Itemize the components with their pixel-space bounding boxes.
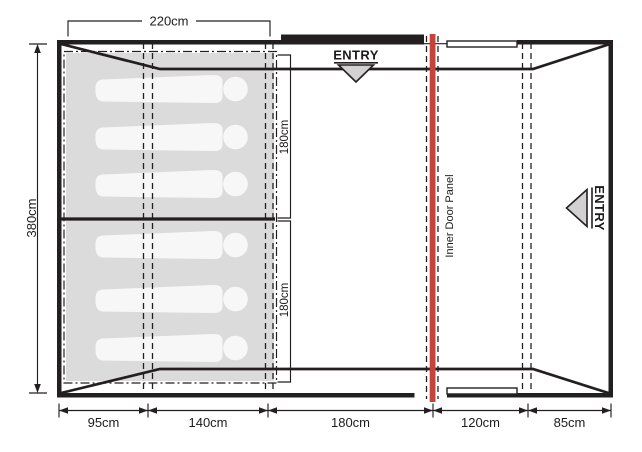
inner-door-panel-label: Inner Door Panel: [444, 174, 456, 257]
entry-top-label: ENTRY: [333, 48, 379, 63]
sleeper-head: [223, 125, 248, 150]
dimension-arrow: [34, 44, 41, 53]
wall-right: [609, 40, 614, 398]
sleeper-head: [223, 77, 248, 102]
dimension-bottom-label-3: 180cm: [331, 415, 370, 430]
wall-left: [57, 40, 62, 398]
sleeper-body: [96, 75, 223, 103]
dimension-bottom-chain: 95cm 140cm 180cm 120cm 85cm: [59, 404, 611, 431]
dimension-left: 380cm: [24, 44, 47, 393]
sleeper-body: [96, 231, 223, 259]
vent-window-bottom: [447, 388, 517, 394]
dimension-top-label: 220cm: [149, 14, 188, 29]
entry-side: ENTRY: [567, 185, 608, 231]
sleeper-body: [96, 123, 223, 151]
dimension-bottom-label-4: 120cm: [461, 415, 500, 430]
dimension-inner-bottom-label: 180cm: [279, 283, 291, 318]
dimension-inner-top-label: 180cm: [279, 120, 291, 155]
wall-top-left-segment: [57, 40, 281, 45]
dimension-inner-bottom: 180cm: [278, 221, 292, 382]
dimension-bottom-label-1: 95cm: [88, 415, 120, 430]
dimension-arrow: [34, 384, 41, 393]
dimension-bottom-label-2: 140cm: [188, 415, 227, 430]
inner-door-panel-line: [430, 34, 436, 402]
tent-floorplan-diagram: Inner Door Panel 220cm 380cm 180cm 180cm…: [0, 0, 642, 452]
wall-bottom-left-segment: [57, 393, 415, 398]
wall-top-right-segment: [517, 40, 613, 45]
roof-edge-bottom: [59, 369, 610, 394]
front-door-panel: [281, 35, 424, 45]
sleeper-head: [223, 336, 248, 361]
sleeper-head: [223, 172, 248, 197]
sleeper-body: [96, 285, 223, 313]
dimension-inner-top: 180cm: [278, 55, 292, 218]
sleeper-body: [96, 170, 223, 198]
sleeper-head: [223, 233, 248, 258]
vent-window-top: [447, 41, 517, 47]
entry-top: ENTRY: [333, 48, 379, 83]
entry-side-label: ENTRY: [592, 185, 607, 231]
dimension-bottom-label-5: 85cm: [554, 415, 586, 430]
sleeper-head: [223, 287, 248, 312]
dimension-left-label: 380cm: [24, 198, 39, 237]
entry-side-arrow-icon: [567, 190, 588, 227]
entry-top-arrow-icon: [339, 65, 374, 82]
sleeper-body: [96, 334, 223, 362]
dimension-top: 220cm: [68, 13, 270, 37]
